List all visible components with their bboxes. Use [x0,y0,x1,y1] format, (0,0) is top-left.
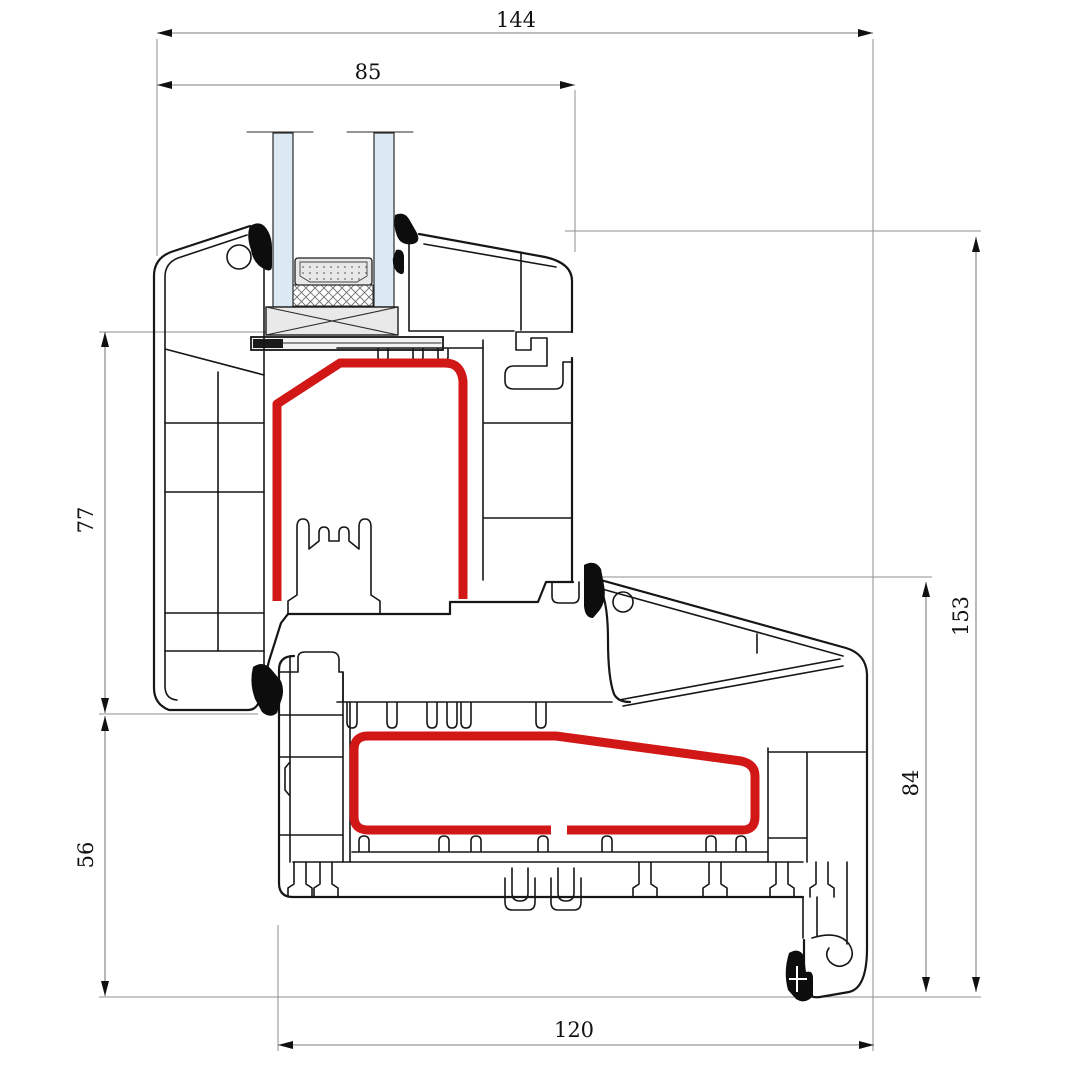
setting-block [266,307,398,335]
chamber-dividers-horizontal [165,423,264,651]
drip-apron-walls [803,862,847,944]
sill-front-upstand [279,652,343,702]
glass-pane-inner [374,133,394,307]
upstand-diagonal-strut [619,659,843,706]
dim-label-sill-width: 120 [554,1018,594,1042]
dim-label-total-height: 153 [949,596,973,636]
end-cap-gasket [786,951,813,1002]
chamber-slope-divider [165,349,264,375]
dim-label-glazing-unit-width: 85 [355,60,382,84]
frame-bottom-steps [288,582,573,614]
gasket-foot-channel [227,245,251,269]
dimension-sill-back-height: 84 [899,582,930,992]
upstand-top-chord-inner [602,589,843,656]
frame-bottom-foot [552,582,579,603]
dimension-glazing-unit-width: 85 [157,60,575,89]
spacer-desiccant-fill [300,262,367,282]
right-chamber-grid [483,340,572,580]
hardware-groove [288,519,380,614]
screw-channel-2 [551,868,581,910]
dim-label-frame-height: 77 [74,507,98,534]
dimension-total-width: 144 [157,8,873,37]
dim-label-sill-front-height: 56 [74,842,98,869]
frame-sill-gasket-right [584,563,605,618]
dim-label-total-width: 144 [496,8,536,32]
frame-outer-top-right [419,234,572,332]
sill-profile [279,579,867,997]
glazing-bead-clip-hook [505,332,572,389]
upstand-top-chord [597,579,867,674]
glazing-bead-chambers [409,240,556,331]
glass-gasket-outer [248,223,272,270]
sash-red-gasket [277,363,463,601]
frame-inner-wall [165,235,247,700]
technical-drawing-canvas: 144 85 77 56 153 84 120 [0,0,1080,1080]
sill-mid-web-bumps [352,836,768,852]
red-seals [277,363,755,830]
dim-label-sill-back-height: 84 [899,770,923,797]
dimension-sill-front-height: 56 [74,716,109,996]
window-profile-section-drawing: 144 85 77 56 153 84 120 [0,0,1080,1080]
glass-pane-outer [273,133,293,307]
sill-front-chambers [279,656,350,862]
sill-dovetail-feet [288,862,834,897]
sill-back-chambers [768,748,867,862]
glass-gasket-inner-top [394,214,418,245]
sill-red-insulation-chamber [354,736,755,830]
dimension-sill-width: 120 [278,1018,874,1049]
frame-outer-left [154,226,288,710]
dimension-total-height: 153 [949,237,980,992]
extension-lines [99,39,981,1051]
end-cap-outline [804,940,867,997]
edge-sealant-crosshatch [293,285,373,306]
screw-channel-1 [505,868,535,910]
dimension-frame-height: 77 [74,332,109,713]
sill-top-web-teeth [337,702,612,728]
